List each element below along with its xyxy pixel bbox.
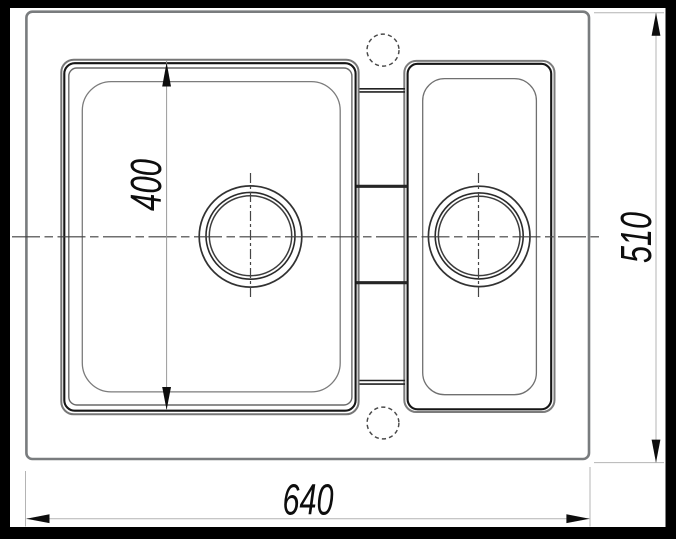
svg-text:400: 400 (122, 159, 171, 211)
svg-text:510: 510 (612, 212, 661, 263)
svg-text:640: 640 (283, 476, 334, 525)
